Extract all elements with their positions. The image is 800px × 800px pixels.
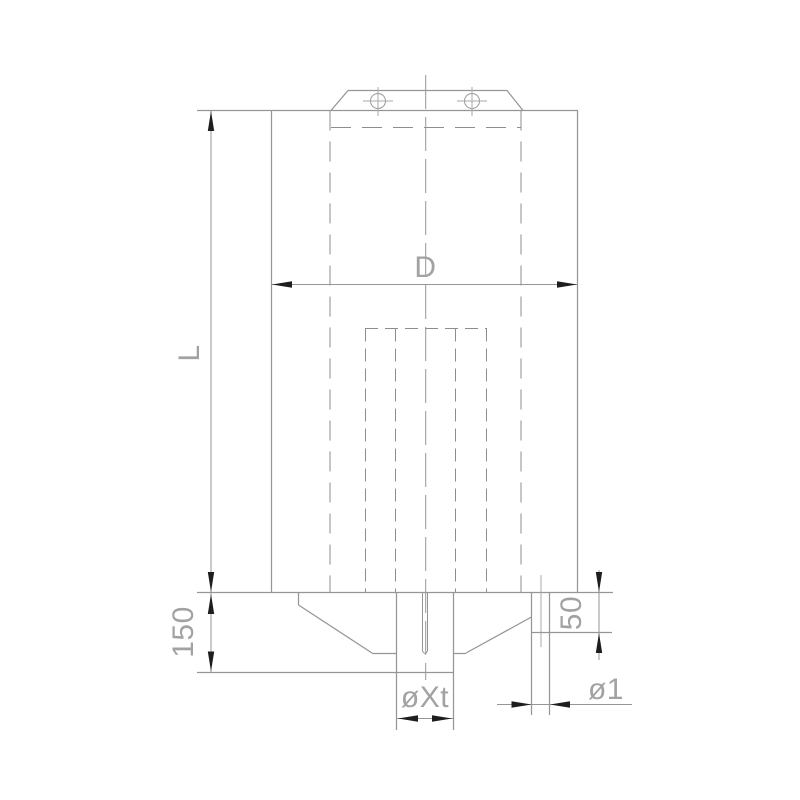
dimension-L: L bbox=[173, 111, 214, 593]
dim-oXt-label: øXt bbox=[401, 681, 449, 714]
dim-L-label: L bbox=[173, 344, 206, 361]
dimension-oXt: øXt bbox=[397, 681, 453, 722]
dim-150-label: 150 bbox=[167, 606, 200, 658]
dimension-o1: ø1 bbox=[497, 673, 632, 708]
mounting-lug bbox=[331, 87, 523, 116]
dim-150-arrowhead-bottom bbox=[208, 652, 214, 672]
dim-oXt-arrowhead-left bbox=[398, 715, 418, 721]
dim-L-arrowhead-top bbox=[208, 111, 214, 131]
funnel-bottom bbox=[197, 593, 532, 673]
dim-50-arrowhead-top bbox=[596, 572, 602, 592]
mounting-lug-outline bbox=[331, 91, 523, 111]
engineering-drawing-canvas: L 150 D 50 øXt ø1 bbox=[0, 0, 800, 800]
dim-L-arrowhead-bottom bbox=[208, 572, 214, 592]
dimension-D: D bbox=[272, 251, 577, 288]
inner-pipe-bottom-cap bbox=[423, 651, 428, 653]
dim-150-arrowhead-top bbox=[208, 594, 214, 614]
dim-o1-arrowhead-left-pointing bbox=[550, 701, 570, 707]
dim-50-arrowhead-bottom bbox=[596, 633, 602, 653]
dim-oXt-arrowhead-right bbox=[432, 715, 452, 721]
funnel-right-slope bbox=[466, 617, 532, 653]
dimension-150: 150 bbox=[167, 593, 214, 673]
dim-50-label: 50 bbox=[555, 596, 588, 630]
funnel-left-slope bbox=[299, 605, 373, 653]
housing-body bbox=[197, 111, 613, 593]
dim-o1-label: ø1 bbox=[588, 673, 624, 706]
dimension-50: 50 bbox=[555, 570, 602, 660]
dim-D-label: D bbox=[414, 251, 436, 284]
drawing-page: L 150 D 50 øXt ø1 bbox=[0, 0, 800, 800]
dim-D-arrowhead-left bbox=[272, 281, 292, 287]
dim-o1-arrowhead-right-pointing bbox=[512, 701, 532, 707]
dim-D-arrowhead-right bbox=[557, 281, 577, 287]
inner-pipe bbox=[423, 593, 428, 654]
